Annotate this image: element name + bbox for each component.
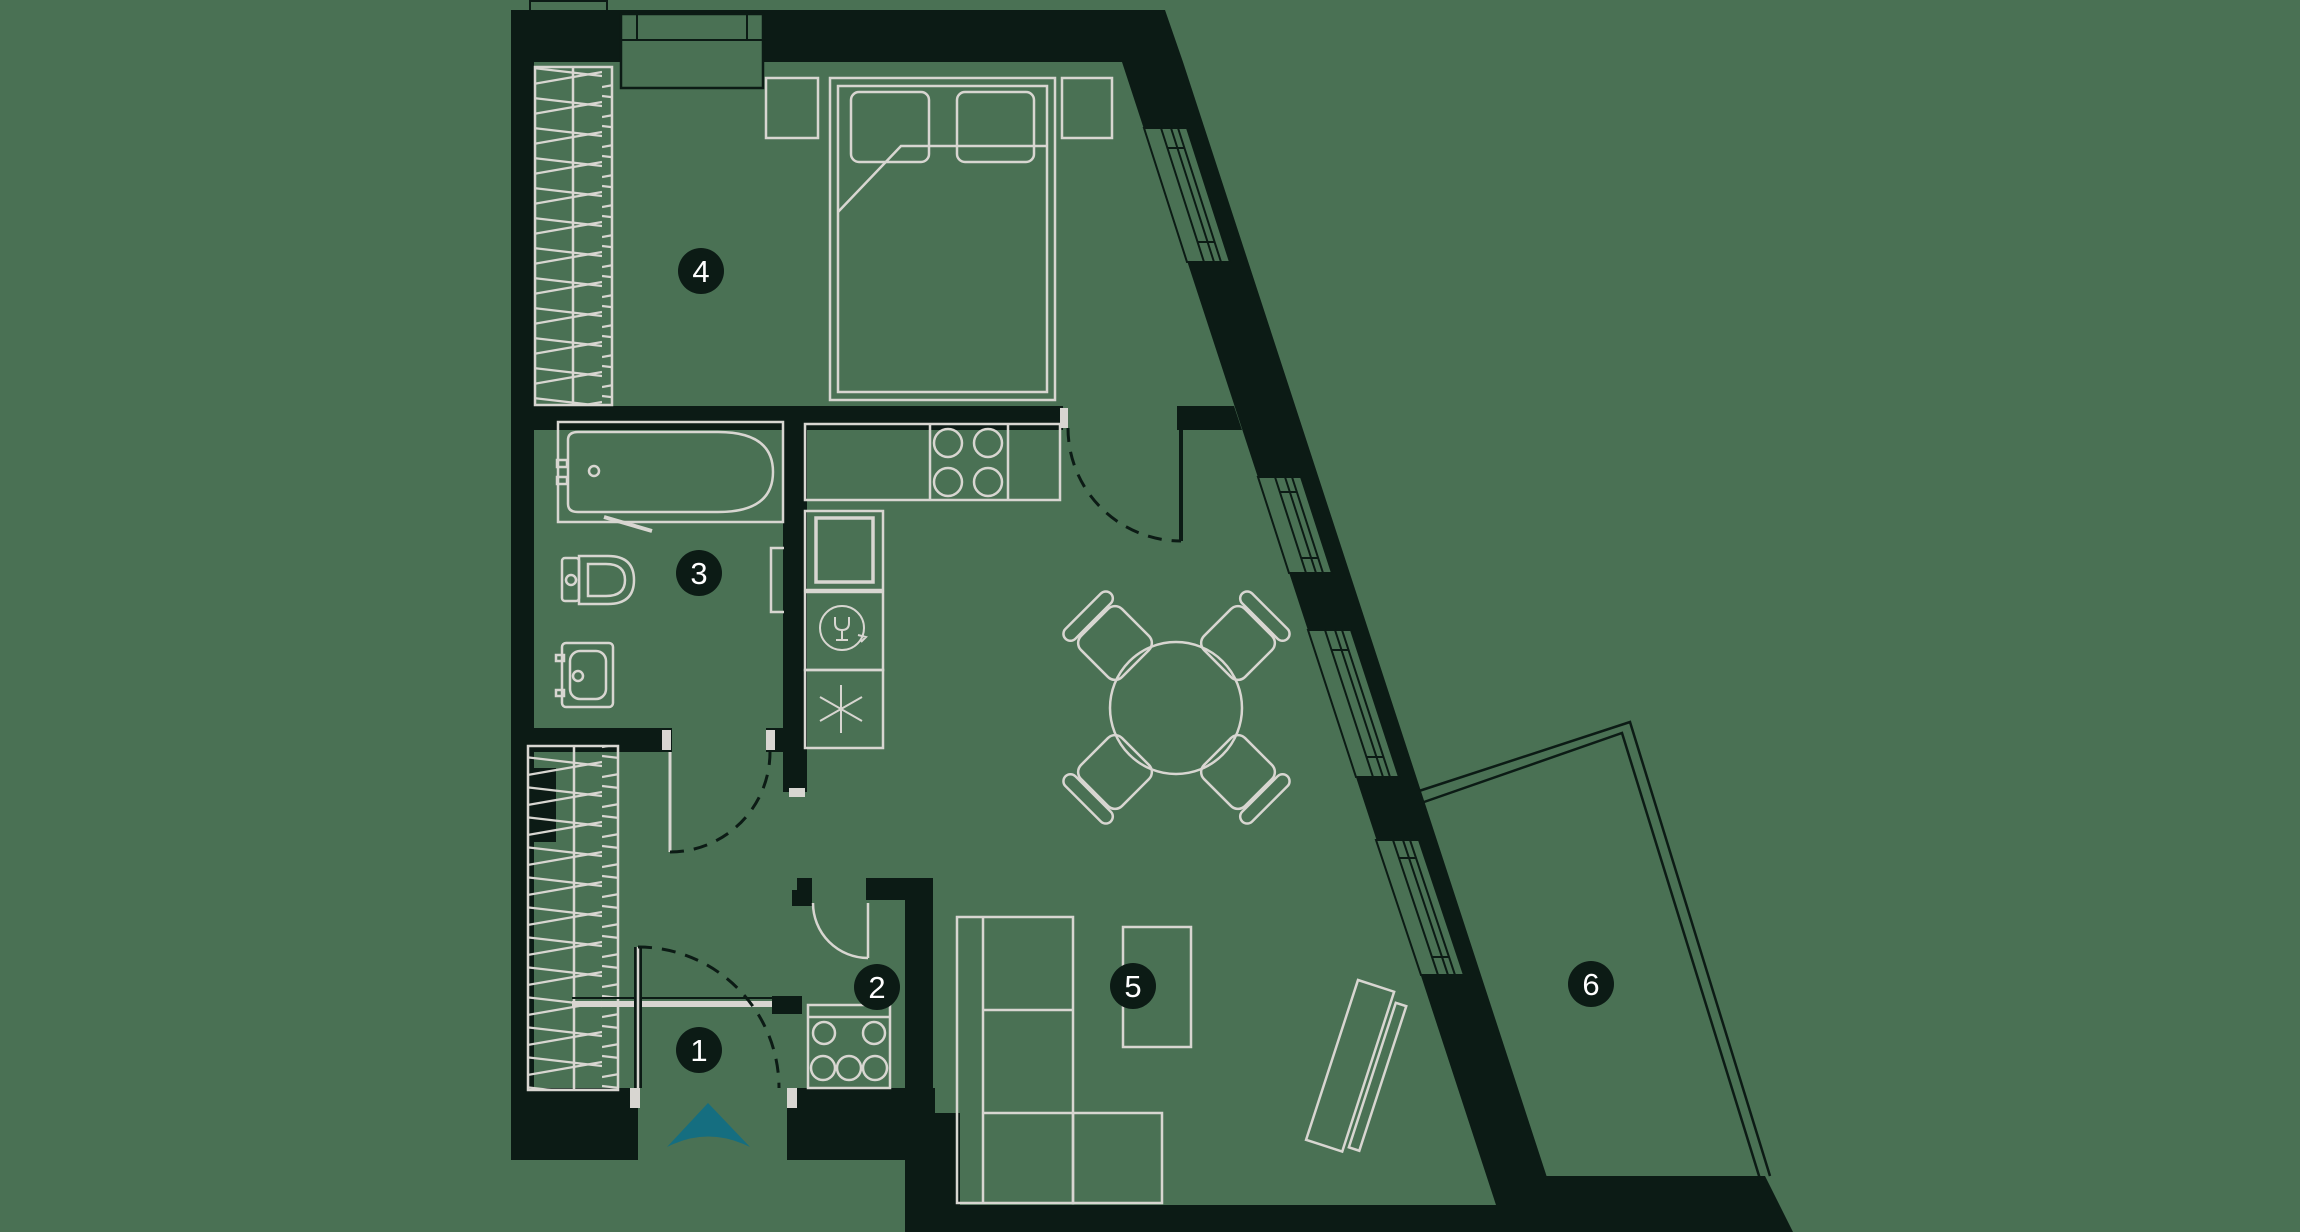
pillow bbox=[957, 92, 1034, 162]
washing-machine bbox=[808, 1005, 890, 1088]
room-number: 2 bbox=[868, 972, 885, 1003]
exterior-ledge bbox=[530, 1, 607, 11]
room-number: 6 bbox=[1582, 969, 1599, 1000]
kitchen-sink bbox=[805, 511, 883, 590]
room2-door-swing bbox=[813, 903, 868, 958]
dishwasher bbox=[805, 592, 883, 670]
refrigerator bbox=[805, 670, 883, 748]
nightstand-left bbox=[766, 78, 818, 138]
tub-faucet bbox=[589, 466, 599, 476]
bathroom-fixtures bbox=[556, 422, 784, 707]
room-number: 4 bbox=[692, 256, 709, 287]
balcony-south-wall bbox=[1500, 1176, 1793, 1232]
tv-panel bbox=[1349, 1003, 1406, 1151]
corner-sofa bbox=[957, 917, 1162, 1203]
bedroom-door-east-wall bbox=[1177, 406, 1242, 430]
hallway-fixtures bbox=[528, 746, 802, 1090]
tv-stand bbox=[1306, 980, 1409, 1156]
basin-faucet bbox=[573, 671, 583, 681]
room-badge-3: 3 bbox=[676, 550, 722, 596]
dining-chair bbox=[1061, 589, 1159, 687]
room-number: 1 bbox=[690, 1035, 707, 1066]
facade-windows bbox=[1144, 128, 1464, 975]
entrance-arrow-icon bbox=[667, 1103, 750, 1147]
room-badge-5: 5 bbox=[1110, 963, 1156, 1009]
kitchen-counter bbox=[805, 424, 1060, 500]
dining-chair bbox=[1061, 729, 1159, 827]
bathtub bbox=[557, 422, 783, 531]
pillow bbox=[851, 92, 929, 162]
hall-south-wall-left bbox=[511, 1088, 638, 1160]
bathroom-door bbox=[670, 752, 770, 852]
room-badge-2: 2 bbox=[854, 964, 900, 1010]
bedroom-wardrobe bbox=[535, 67, 612, 405]
room-number: 3 bbox=[690, 558, 707, 589]
room-number: 5 bbox=[1124, 971, 1141, 1002]
toilet bbox=[562, 556, 634, 604]
service-shaft bbox=[621, 14, 763, 88]
double-bed bbox=[830, 78, 1055, 400]
floor-plan-drawing bbox=[0, 0, 2300, 1232]
room2-door bbox=[813, 903, 868, 958]
dining-table bbox=[1110, 642, 1242, 774]
washbasin bbox=[556, 643, 613, 707]
room-badge-1: 1 bbox=[676, 1027, 722, 1073]
hall-wardrobe bbox=[528, 746, 618, 1090]
kitchen-fixtures bbox=[805, 424, 1060, 748]
dining-chair bbox=[1195, 589, 1293, 687]
top-wall bbox=[511, 10, 1183, 62]
grab-bar bbox=[604, 517, 652, 531]
room2-door-jamb bbox=[792, 890, 812, 906]
floor-plan: 1 2 3 4 5 6 bbox=[0, 0, 2300, 1232]
dining-table-set bbox=[1061, 589, 1293, 827]
blanket-fold bbox=[838, 146, 1047, 212]
room-badge-4: 4 bbox=[678, 248, 724, 294]
bedroom-south-wall bbox=[511, 406, 1063, 430]
living-south-wall bbox=[930, 1205, 1545, 1232]
nightstand-right bbox=[1062, 78, 1112, 138]
dining-chair bbox=[1195, 729, 1293, 827]
room-badge-6: 6 bbox=[1568, 961, 1614, 1007]
bedroom-door bbox=[1068, 428, 1181, 541]
towel-radiator bbox=[771, 548, 784, 612]
snowflake-asterisk-icon bbox=[820, 685, 862, 733]
bedroom-furniture bbox=[535, 67, 1112, 405]
stove-burners bbox=[934, 429, 1002, 496]
